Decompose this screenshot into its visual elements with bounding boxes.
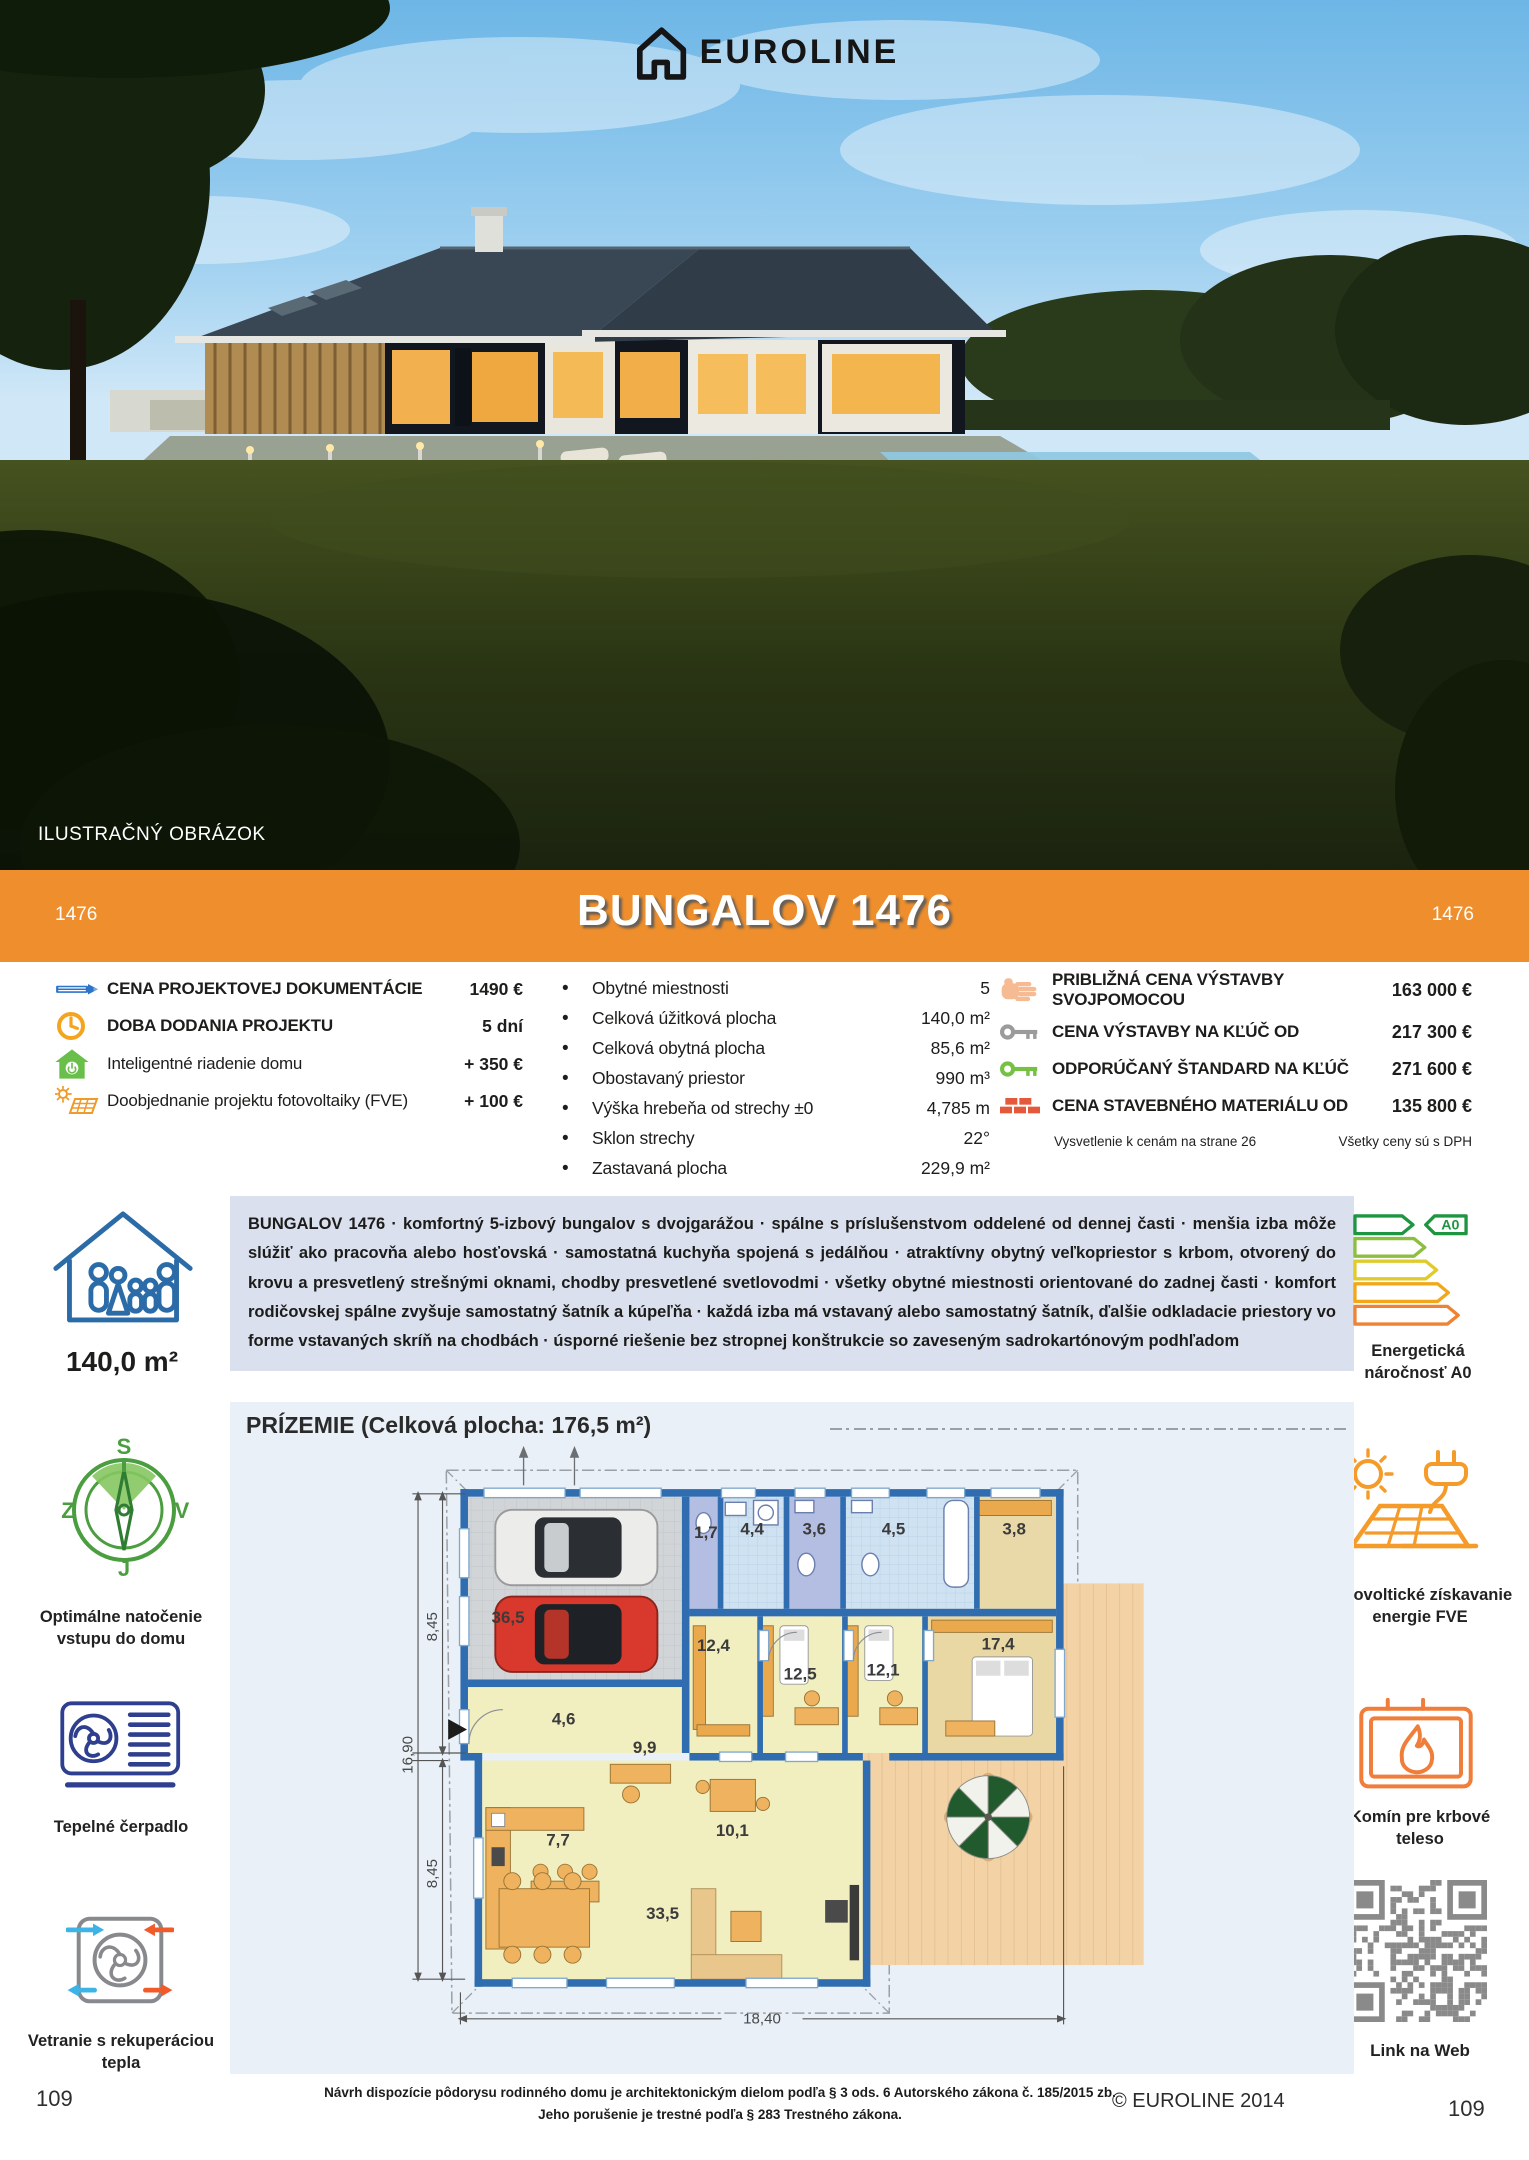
- key-gray-icon: [1000, 1020, 1052, 1044]
- brand-logo: EUROLINE: [630, 22, 900, 82]
- spec-value: 229,9 m²: [921, 1158, 990, 1179]
- dim-label: 16,90: [399, 1736, 416, 1774]
- legal-line-2: Jeho porušenie je trestné podľa § 283 Tr…: [270, 2104, 1170, 2126]
- spec-value: 163 000 €: [1368, 980, 1472, 1001]
- compass-label: Optimálne natočenie vstupu do domu: [18, 1606, 224, 1651]
- spec-value: 5 dní: [482, 1016, 523, 1037]
- qr-label: Link na Web: [1330, 2040, 1510, 2063]
- room-label: 10,1: [716, 1821, 749, 1840]
- energy-rating-icon: A0: [1352, 1210, 1470, 1335]
- spec-label: Doobjednanie projektu fotovoltaiky (FVE): [107, 1091, 464, 1111]
- ventilation-icon: [66, 1906, 174, 2019]
- spec-label: CENA VÝSTAVBY NA KĽÚČ OD: [1052, 1022, 1368, 1042]
- legal-line-1: Návrh dispozície pôdorysu rodinného domu…: [270, 2082, 1170, 2104]
- bullet-icon: •: [562, 1008, 592, 1030]
- energy-rating-label: Energetická náročnosť A0: [1328, 1340, 1508, 1385]
- spec-column-right: PRIBLIŽNÁ CENA VÝSTAVBY SVOJPOMOCOU 163 …: [1000, 970, 1472, 1149]
- room-label: 17,4: [982, 1634, 1016, 1653]
- family-house-icon: [50, 1203, 196, 1332]
- compass-icon: S Z V J: [58, 1438, 190, 1583]
- spec-row: PRIBLIŽNÁ CENA VÝSTAVBY SVOJPOMOCOU 163 …: [1000, 970, 1472, 1010]
- spec-label: Celková obytná plocha: [592, 1038, 931, 1059]
- page-title: BUNGALOV 1476: [0, 886, 1529, 936]
- legal-note: Návrh dispozície pôdorysu rodinného domu…: [270, 2082, 1170, 2125]
- spec-row: •Celková úžitková plocha140,0 m²: [562, 1004, 990, 1033]
- spec-row: ODPORÚČANÝ ŠTANDARD NA KĽÚČ 271 600 €: [1000, 1054, 1472, 1084]
- spec-value: 1490 €: [469, 979, 523, 1000]
- room-label: 36,5: [492, 1608, 525, 1627]
- fireplace-chimney-icon: [1356, 1694, 1476, 1799]
- spec-row: CENA PROJEKTOVEJ DOKUMENTÁCIE 1490 €: [55, 974, 523, 1004]
- bricks-icon: [1000, 1094, 1052, 1118]
- spec-label: ODPORÚČANÝ ŠTANDARD NA KĽÚČ: [1052, 1059, 1368, 1079]
- room-label: 12,4: [697, 1636, 731, 1655]
- spec-value: 5: [980, 978, 990, 999]
- room-label: 33,5: [646, 1904, 679, 1923]
- model-code-right: 1476: [1432, 904, 1474, 926]
- house-description: BUNGALOV 1476 · komfortný 5-izbový bunga…: [230, 1196, 1354, 1371]
- spec-label: CENA PROJEKTOVEJ DOKUMENTÁCIE: [107, 979, 469, 999]
- room-label: 1,7: [694, 1523, 718, 1542]
- page-number-right: 109: [1448, 2096, 1485, 2122]
- spec-label: DOBA DODANIA PROJEKTU: [107, 1016, 482, 1036]
- compass-south: J: [118, 1556, 130, 1578]
- spec-row: •Obostavaný priestor990 m³: [562, 1064, 990, 1093]
- spec-label: Zastavaná plocha: [592, 1158, 921, 1179]
- hero-photo: [0, 0, 1529, 870]
- room-label: 4,5: [882, 1519, 906, 1538]
- bullet-icon: •: [562, 1068, 592, 1090]
- spec-label: Obytné miestnosti: [592, 978, 980, 999]
- price-footnotes: Vysvetlenie k cenám na strane 26 Všetky …: [1000, 1134, 1472, 1149]
- floorplan-drawing: 36,5 1,7 4,4 3,6 4,5 3,8 12,4 12,5 12,1 …: [380, 1442, 1210, 2064]
- bullet-icon: •: [562, 1128, 592, 1150]
- room-label: 4,4: [740, 1519, 764, 1538]
- spec-value: 22°: [964, 1128, 990, 1149]
- spec-label: Inteligentné riadenie domu: [107, 1054, 464, 1074]
- euroline-house-icon: [630, 22, 688, 82]
- house-photo-illustration: [0, 0, 1529, 870]
- fireplace-chimney-label: Komín pre krbové teleso: [1330, 1806, 1510, 1851]
- spec-row: Inteligentné riadenie domu + 350 €: [55, 1048, 523, 1080]
- spec-value: 135 800 €: [1368, 1096, 1472, 1117]
- spec-row: CENA STAVEBNÉHO MATERIÁLU OD 135 800 €: [1000, 1091, 1472, 1121]
- heat-pump-label: Tepelné čerpadlo: [18, 1816, 224, 1838]
- energy-badge-text: A0: [1441, 1218, 1459, 1234]
- compass-east: V: [175, 1498, 190, 1523]
- dim-label: 8,45: [424, 1612, 441, 1641]
- ventilation-label: Vetranie s rekuperáciou tepla: [10, 2030, 232, 2075]
- spec-row: •Obytné miestnosti5: [562, 974, 990, 1003]
- room-label: 7,7: [546, 1830, 570, 1849]
- spec-label: CENA STAVEBNÉHO MATERIÁLU OD: [1052, 1096, 1368, 1116]
- qr-code: [1345, 1880, 1487, 2027]
- catalog-page: EUROLINE ILUSTRAČNÝ OBRÁZOK 1476 BUNGALO…: [0, 0, 1529, 2160]
- key-green-icon: [1000, 1057, 1052, 1081]
- spec-column-left: CENA PROJEKTOVEJ DOKUMENTÁCIE 1490 € DOB…: [55, 974, 523, 1116]
- spec-row: •Výška hrebeňa od strechy ±04,785 m: [562, 1094, 990, 1123]
- pencil-icon: [55, 976, 107, 1002]
- bullet-icon: •: [562, 978, 592, 1000]
- spec-value: 140,0 m²: [921, 1008, 990, 1029]
- spec-value: + 100 €: [464, 1091, 523, 1112]
- room-label: 3,8: [1002, 1519, 1026, 1538]
- smart-home-icon: [55, 1048, 107, 1080]
- bullet-icon: •: [562, 1158, 592, 1180]
- brand-name: EUROLINE: [700, 33, 900, 72]
- compass-north: S: [117, 1438, 132, 1459]
- dim-label: 18,40: [743, 2010, 781, 2027]
- photovoltaic-icon: [1340, 1444, 1480, 1561]
- dim-label: 8,45: [424, 1859, 441, 1888]
- footnote-right: Všetky ceny sú s DPH: [1338, 1134, 1472, 1149]
- spec-row: •Zastavaná plocha229,9 m²: [562, 1154, 990, 1183]
- photo-caption: ILUSTRAČNÝ OBRÁZOK: [38, 824, 266, 846]
- spec-row: CENA VÝSTAVBY NA KĽÚČ OD 217 300 €: [1000, 1017, 1472, 1047]
- room-label: 4,6: [552, 1710, 576, 1729]
- floorplan-title: PRÍZEMIE (Celková plocha: 176,5 m²): [246, 1412, 651, 1439]
- section-dash-line: [830, 1428, 1346, 1430]
- spec-value: 4,785 m: [927, 1098, 990, 1119]
- usable-area-value: 140,0 m²: [18, 1346, 226, 1378]
- spec-label: PRIBLIŽNÁ CENA VÝSTAVBY SVOJPOMOCOU: [1052, 970, 1368, 1010]
- solar-addon-icon: [55, 1086, 107, 1116]
- room-label: 9,9: [633, 1738, 657, 1757]
- spec-value: + 350 €: [464, 1054, 523, 1075]
- footnote-left: Vysvetlenie k cenám na strane 26: [1054, 1134, 1256, 1149]
- room-label: 12,5: [784, 1664, 817, 1683]
- compass-west: Z: [61, 1498, 74, 1523]
- page-number-left: 109: [36, 2086, 73, 2112]
- spec-row: Doobjednanie projektu fotovoltaiky (FVE)…: [55, 1086, 523, 1116]
- bullet-icon: •: [562, 1098, 592, 1120]
- copyright: © EUROLINE 2014: [1112, 2090, 1352, 2113]
- spec-row: DOBA DODANIA PROJEKTU 5 dní: [55, 1010, 523, 1042]
- spec-column-middle: •Obytné miestnosti5 •Celková úžitková pl…: [562, 974, 990, 1183]
- spec-label: Výška hrebeňa od strechy ±0: [592, 1098, 927, 1119]
- spec-row: •Celková obytná plocha85,6 m²: [562, 1034, 990, 1063]
- spec-value: 85,6 m²: [931, 1038, 990, 1059]
- hand-icon: [1000, 977, 1052, 1003]
- spec-value: 990 m³: [936, 1068, 990, 1089]
- title-banner: 1476 BUNGALOV 1476 1476: [0, 870, 1529, 962]
- skylight-arrows: [520, 1448, 578, 1486]
- spec-label: Obostavaný priestor: [592, 1068, 936, 1089]
- spec-value: 217 300 €: [1368, 1022, 1472, 1043]
- floorplan-panel: PRÍZEMIE (Celková plocha: 176,5 m²): [230, 1402, 1354, 2074]
- bullet-icon: •: [562, 1038, 592, 1060]
- spec-label: Sklon strechy: [592, 1128, 964, 1149]
- spec-value: 271 600 €: [1368, 1059, 1472, 1080]
- clock-icon: [55, 1010, 107, 1042]
- heat-pump-icon: [60, 1696, 182, 1801]
- room-label: 3,6: [803, 1519, 827, 1538]
- spec-row: •Sklon strechy22°: [562, 1124, 990, 1153]
- spec-label: Celková úžitková plocha: [592, 1008, 921, 1029]
- room-label: 12,1: [867, 1661, 900, 1680]
